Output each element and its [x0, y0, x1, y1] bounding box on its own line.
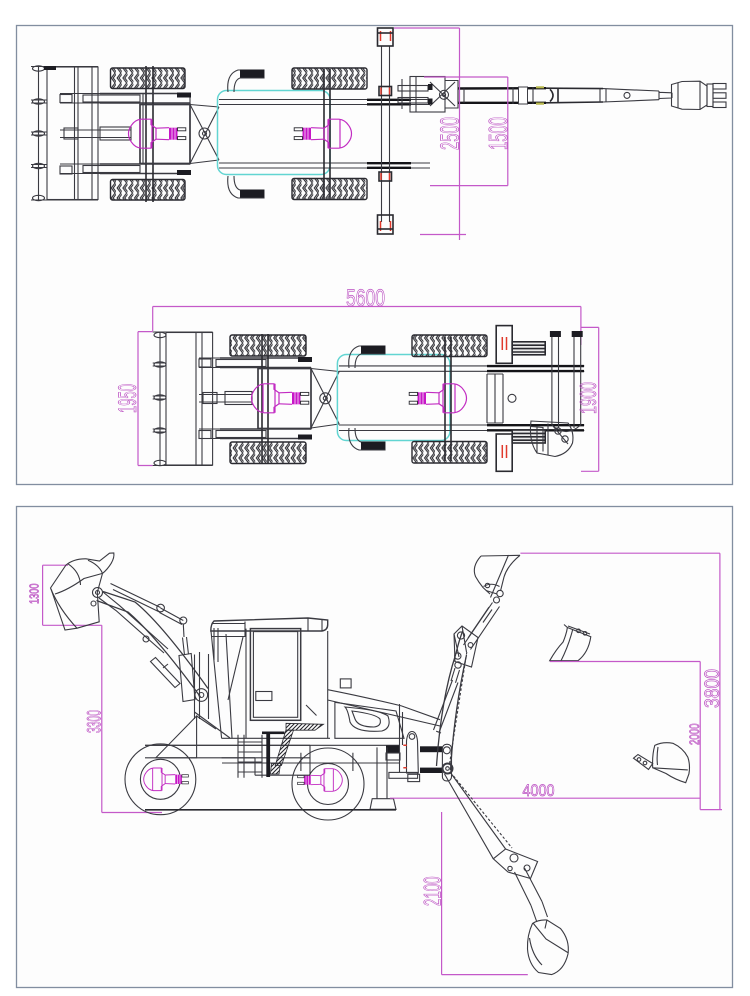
svg-text:1300: 1300: [27, 584, 42, 605]
svg-text:1500: 1500: [483, 117, 513, 150]
svg-text:2000: 2000: [686, 723, 702, 745]
svg-text:1900: 1900: [575, 382, 601, 414]
svg-text:1950: 1950: [114, 384, 142, 413]
svg-text:4000: 4000: [523, 781, 555, 800]
svg-text:2500: 2500: [435, 117, 465, 150]
svg-text:3800: 3800: [701, 669, 724, 708]
svg-text:2100: 2100: [420, 877, 447, 907]
svg-text:5600: 5600: [346, 285, 385, 312]
svg-text:3300: 3300: [85, 710, 106, 733]
